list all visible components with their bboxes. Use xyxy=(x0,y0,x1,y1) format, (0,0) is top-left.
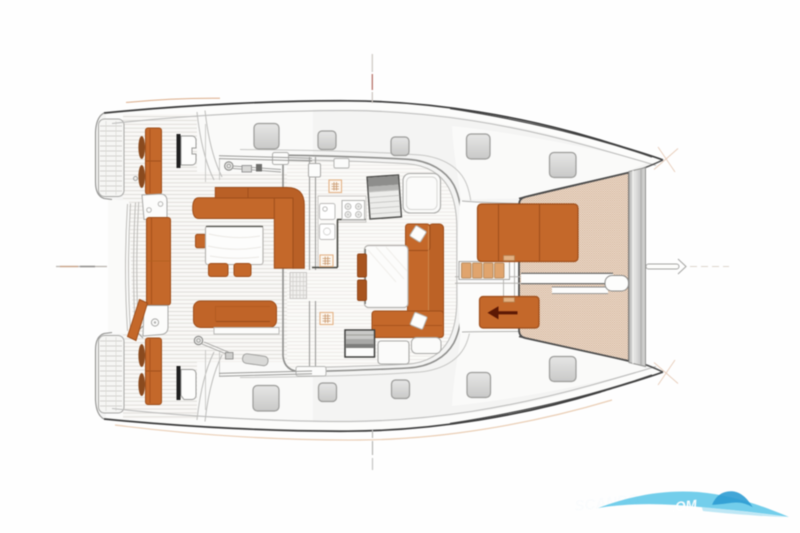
svg-text:.OM: .OM xyxy=(671,497,699,515)
